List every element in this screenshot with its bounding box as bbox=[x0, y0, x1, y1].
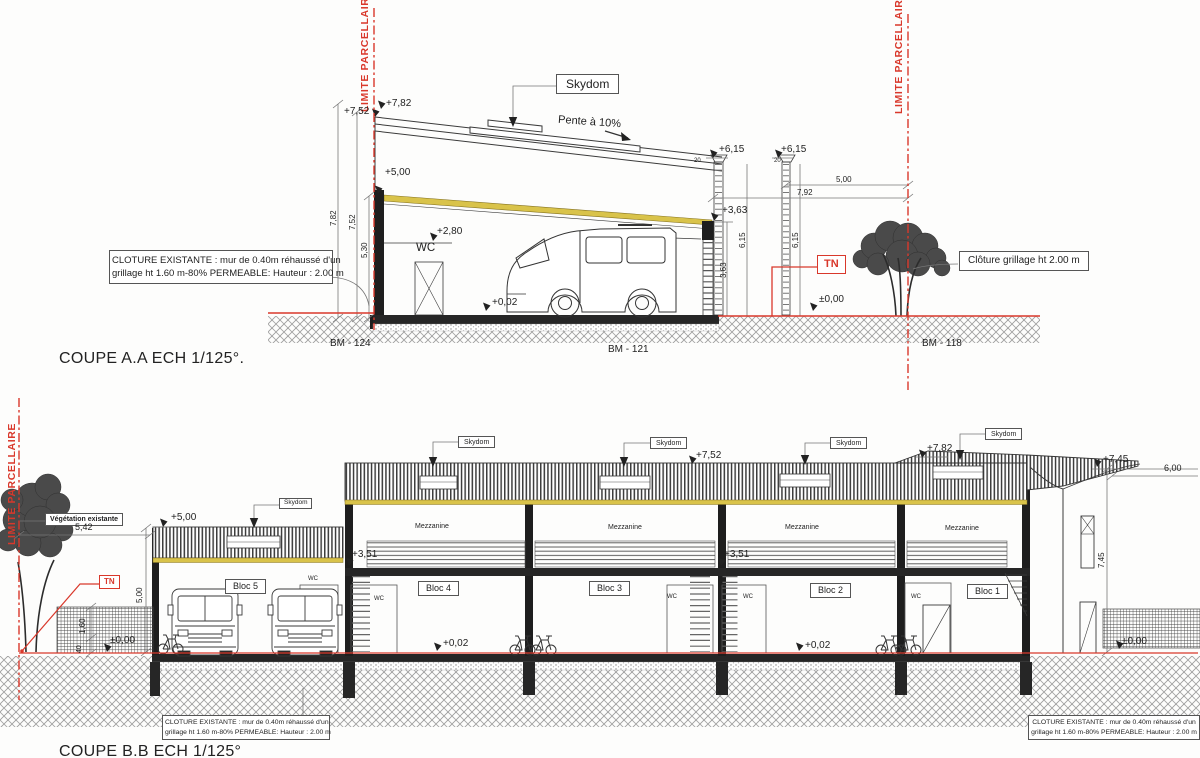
level-752-a: +7,52 bbox=[344, 107, 369, 117]
wc-label-b3: WC bbox=[667, 594, 677, 600]
note-line-1: CLOTURE EXISTANTE : mur de 0.40m réhauss… bbox=[165, 718, 327, 728]
dim-530-rot: 5,30 bbox=[361, 242, 369, 258]
dim-20-a2: 20 bbox=[774, 158, 781, 164]
level-615-a1: +6,15 bbox=[719, 145, 744, 155]
bloc-5-label: Bloc 5 bbox=[225, 579, 266, 594]
dim-500-rot-b: 5,00 bbox=[136, 587, 144, 603]
bloc-3-label: Bloc 3 bbox=[589, 581, 630, 596]
skydom-label-b3: Skydom bbox=[830, 437, 867, 449]
tn-box-a: TN bbox=[817, 255, 846, 274]
limite-parcellaire-right-a: LIMITE PARCELLAIRE bbox=[894, 0, 905, 114]
dim-160-rot: 1,60 bbox=[79, 618, 87, 634]
dim-363-rot: 3,63 bbox=[720, 262, 728, 278]
level-002-b1: +0,02 bbox=[443, 639, 468, 649]
level-351-b1: +3,51 bbox=[352, 550, 377, 560]
bloc-1-label: Bloc 1 bbox=[967, 584, 1008, 599]
level-000-a: ±0,00 bbox=[819, 295, 844, 305]
dim-40-rot: 40 bbox=[76, 645, 83, 653]
tn-box-b: TN bbox=[99, 575, 120, 589]
dim-752-rot: 7,52 bbox=[349, 214, 357, 230]
wc-label-b4: WC bbox=[374, 596, 384, 602]
mezzanine-label-1: Mezzanine bbox=[415, 523, 449, 530]
level-351-b2: +3,51 bbox=[724, 550, 749, 560]
level-002-a: +0,02 bbox=[492, 298, 517, 308]
level-002-b2: +0,02 bbox=[805, 641, 830, 651]
dim-542: 5,42 bbox=[75, 523, 93, 532]
level-363-a: +3,63 bbox=[722, 206, 747, 216]
note-cloture-existante-b-right: CLOTURE EXISTANTE : mur de 0.40m réhauss… bbox=[1028, 715, 1200, 740]
note-line-1: CLOTURE EXISTANTE : mur de 0.40m réhauss… bbox=[112, 254, 330, 267]
limite-parcellaire-left-b: LIMITE PARCELLAIRE bbox=[7, 423, 18, 545]
level-752-b: +7,52 bbox=[696, 451, 721, 461]
dim-20-a1: 20 bbox=[694, 158, 701, 164]
bloc-4-label: Bloc 4 bbox=[418, 581, 459, 596]
limite-parcellaire-left-a: LIMITE PARCELLAIRE bbox=[360, 0, 371, 112]
wc-label-a: WC bbox=[416, 243, 435, 255]
drawing-linework bbox=[0, 0, 1200, 758]
dim-600: 6,00 bbox=[1164, 464, 1182, 473]
bm-124: BM - 124 bbox=[330, 339, 371, 349]
level-615-a2: +6,15 bbox=[781, 145, 806, 155]
mezzanine-label-4: Mezzanine bbox=[945, 525, 979, 532]
note-cloture-existante-b-left: CLOTURE EXISTANTE : mur de 0.40m réhauss… bbox=[162, 715, 330, 740]
dim-792-a: 7,92 bbox=[797, 189, 813, 197]
coupe-a-tree bbox=[853, 221, 950, 316]
note-line-2: grillage ht 1.60 m-80% PERMEABLE: Hauteu… bbox=[165, 728, 327, 738]
skydom-label-b1: Skydom bbox=[458, 436, 495, 448]
bm-121: BM - 121 bbox=[608, 345, 649, 355]
dim-500-a: 5,00 bbox=[836, 176, 852, 184]
level-745-b: +7,45 bbox=[1103, 455, 1128, 465]
skydom-label-b5: Skydom bbox=[279, 498, 312, 509]
note-line-1: CLOTURE EXISTANTE : mur de 0.40m réhauss… bbox=[1031, 718, 1197, 728]
level-500-a: +5,00 bbox=[385, 168, 410, 178]
level-500-b: +5,00 bbox=[171, 513, 196, 523]
architectural-drawing: LIMITE PARCELLAIRE LIMITE PARCELLAIRE Sk… bbox=[0, 0, 1200, 758]
level-000-b-left: ±0,00 bbox=[110, 636, 135, 646]
wc-label-b2: WC bbox=[743, 594, 753, 600]
coupe-b-title: COUPE B.B ECH 1/125° bbox=[59, 744, 241, 758]
coupe-b-structure bbox=[57, 451, 1200, 698]
level-280-a: +2,80 bbox=[437, 227, 462, 237]
note-cloture-existante-a: CLOTURE EXISTANTE : mur de 0.40m réhauss… bbox=[109, 250, 333, 284]
bm-118: BM - 118 bbox=[922, 339, 962, 349]
level-782-a: +7,82 bbox=[386, 99, 411, 109]
note-line-2: grillage ht 1.60 m-80% PERMEABLE: Hauteu… bbox=[112, 267, 330, 280]
note-line-2: grillage ht 1.60 m-80% PERMEABLE: Hauteu… bbox=[1031, 728, 1197, 738]
wc-label-b5: WC bbox=[308, 576, 318, 582]
dim-782-rot: 7,82 bbox=[330, 210, 338, 226]
skydom-label-b2: Skydom bbox=[650, 437, 687, 449]
mezzanine-label-2: Mezzanine bbox=[608, 524, 642, 531]
skydom-label-a: Skydom bbox=[556, 74, 619, 94]
skydom-label-b4: Skydom bbox=[985, 428, 1022, 440]
level-782-b: +7,82 bbox=[927, 444, 952, 454]
dim-615-rot-1: 6,15 bbox=[739, 232, 747, 248]
dim-745-rot: 7,45 bbox=[1098, 552, 1106, 568]
note-grillage-a: Clôture grillage ht 2.00 m bbox=[959, 251, 1089, 271]
level-000-b-right: ±0,00 bbox=[1122, 637, 1147, 647]
coupe-a-van bbox=[507, 225, 676, 317]
coupe-a-title: COUPE A.A ECH 1/125°. bbox=[59, 351, 244, 367]
bloc-2-label: Bloc 2 bbox=[810, 583, 851, 598]
mezzanine-label-3: Mezzanine bbox=[785, 524, 819, 531]
wc-label-b1: WC bbox=[911, 594, 921, 600]
dim-615-rot-2: 6,15 bbox=[792, 232, 800, 248]
